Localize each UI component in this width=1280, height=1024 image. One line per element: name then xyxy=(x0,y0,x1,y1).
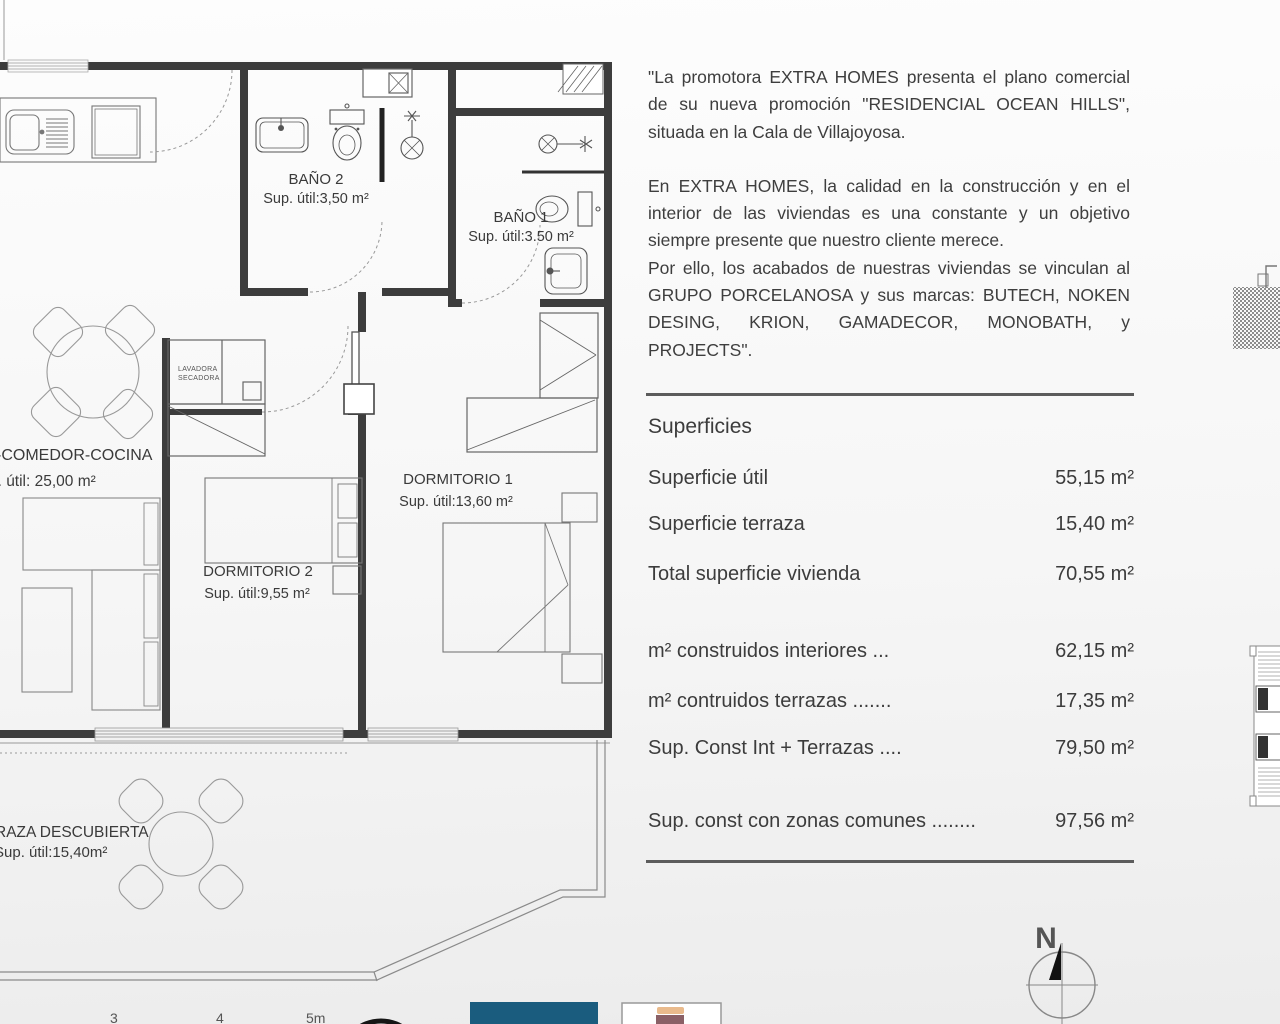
row-value: 55,15 m² xyxy=(1055,467,1134,490)
lavadora-label-1: LAVADORA xyxy=(178,366,218,373)
promo-paragraph-2: En EXTRA HOMES, la calidad en la constru… xyxy=(648,173,1130,255)
table-rule-top xyxy=(646,393,1134,396)
washbasin-icon xyxy=(256,118,308,152)
sofa xyxy=(23,498,160,710)
row-value: 62,15 m² xyxy=(1055,640,1134,663)
shower-icon xyxy=(401,111,423,159)
kitchen-sink xyxy=(6,110,74,154)
table-row: Superficie útil 55,15 m² xyxy=(648,467,1134,490)
row-label: m² contruidos terrazas ....... xyxy=(648,690,891,713)
dorm1-label: DORMITORIO 1 xyxy=(403,471,513,488)
shaft-box xyxy=(363,69,412,97)
dining-set xyxy=(28,302,159,443)
room-labels: BAÑO 2 Sup. útil:3,50 m² BAÑO 1 Sup. úti… xyxy=(0,171,574,861)
table-row: m² construidos interiores ... 62,15 m² xyxy=(648,640,1134,663)
logo-stripe-tan xyxy=(657,1007,684,1014)
kitchen-counter xyxy=(0,98,156,162)
entrance-door-arc xyxy=(150,70,232,152)
laundry-closet xyxy=(168,340,265,456)
promo-text: "La promotora EXTRA HOMES presenta el pl… xyxy=(648,64,1130,364)
window-bottom-left xyxy=(95,728,343,741)
scale-label-3: 3 xyxy=(110,1010,118,1024)
window-top xyxy=(8,60,88,72)
table-row: Total superficie vivienda 70,55 m² xyxy=(648,563,1134,586)
plan-sheet: BAÑO 2 Sup. útil:3,50 m² BAÑO 1 Sup. úti… xyxy=(0,0,1280,1024)
row-value: 70,55 m² xyxy=(1055,563,1134,586)
dorm2-area: Sup. útil:9,55 m² xyxy=(204,586,310,602)
shower-drain-icon xyxy=(539,135,592,153)
terrace-set xyxy=(114,774,248,914)
coffee-table xyxy=(22,588,72,692)
dorm1-area: Sup. útil:13,60 m² xyxy=(399,494,513,510)
table-row: Sup. Const Int + Terrazas .... 79,50 m² xyxy=(648,737,1134,760)
row-label: m² construidos interiores ... xyxy=(648,640,889,663)
compass-n-label: N xyxy=(1035,922,1057,955)
row-value: 15,40 m² xyxy=(1055,513,1134,536)
bano2-area: Sup. útil:3,50 m² xyxy=(263,191,369,207)
surface-table-title: Superficies xyxy=(648,415,752,439)
lavadora-label-2: SECADORA xyxy=(178,375,220,382)
table-row: Sup. const con zonas comunes ........ 97… xyxy=(648,810,1134,833)
row-value: 97,56 m² xyxy=(1055,810,1134,833)
scale-label-5m: 5m xyxy=(306,1010,325,1024)
dorm2-label: DORMITORIO 2 xyxy=(203,563,313,580)
wardrobe-dorm1 xyxy=(467,313,598,452)
table-rule-bottom xyxy=(646,860,1134,863)
toilet-icon xyxy=(330,104,364,160)
window-bottom-right xyxy=(368,728,458,741)
hall-door xyxy=(262,326,374,414)
bano1-area: Sup. útil:3.50 m² xyxy=(468,229,574,245)
row-value: 79,50 m² xyxy=(1055,737,1134,760)
compass: N xyxy=(1026,922,1098,1024)
kitchen-hob xyxy=(92,106,140,158)
table-row: m² contruidos terrazas ....... 17,35 m² xyxy=(648,690,1134,713)
row-label: Sup. const con zonas comunes ........ xyxy=(648,810,976,833)
scale-label-4: 4 xyxy=(216,1010,224,1024)
table-row: Superficie terraza 15,40 m² xyxy=(648,513,1134,536)
stair-hatch-box xyxy=(558,64,603,94)
siteplan-hatch xyxy=(1233,266,1280,349)
bath2-door-arc xyxy=(310,220,382,292)
scale-bar: 3 4 5m xyxy=(110,1010,325,1024)
comedor-label: -COMEDOR-COCINA xyxy=(0,447,153,464)
bano1-label: BAÑO 1 xyxy=(493,209,548,226)
terraza-label: TERRAZA DESCUBIERTA xyxy=(0,824,149,841)
washbasin-icon xyxy=(545,248,587,294)
row-value: 17,35 m² xyxy=(1055,690,1134,713)
comedor-area: Sup. útil: 25,00 m² xyxy=(0,473,96,490)
bed-dorm1 xyxy=(443,493,602,683)
row-label: Total superficie vivienda xyxy=(648,563,860,586)
promo-paragraph-1: "La promotora EXTRA HOMES presenta el pl… xyxy=(648,64,1130,146)
row-label: Superficie útil xyxy=(648,467,768,490)
logo-stripe-brown xyxy=(656,1015,684,1024)
bano2-label: BAÑO 2 xyxy=(288,171,343,188)
key-plan xyxy=(1250,646,1280,806)
terraza-area: Sup. útil:15,40m² xyxy=(0,844,107,861)
porcelanosa-logo-box xyxy=(622,1003,721,1024)
promo-paragraph-3: Por ello, los acabados de nuestras vivie… xyxy=(648,255,1130,364)
row-label: Sup. Const Int + Terrazas .... xyxy=(648,737,902,760)
row-label: Superficie terraza xyxy=(648,513,805,536)
teal-brand-bar xyxy=(470,1002,598,1024)
